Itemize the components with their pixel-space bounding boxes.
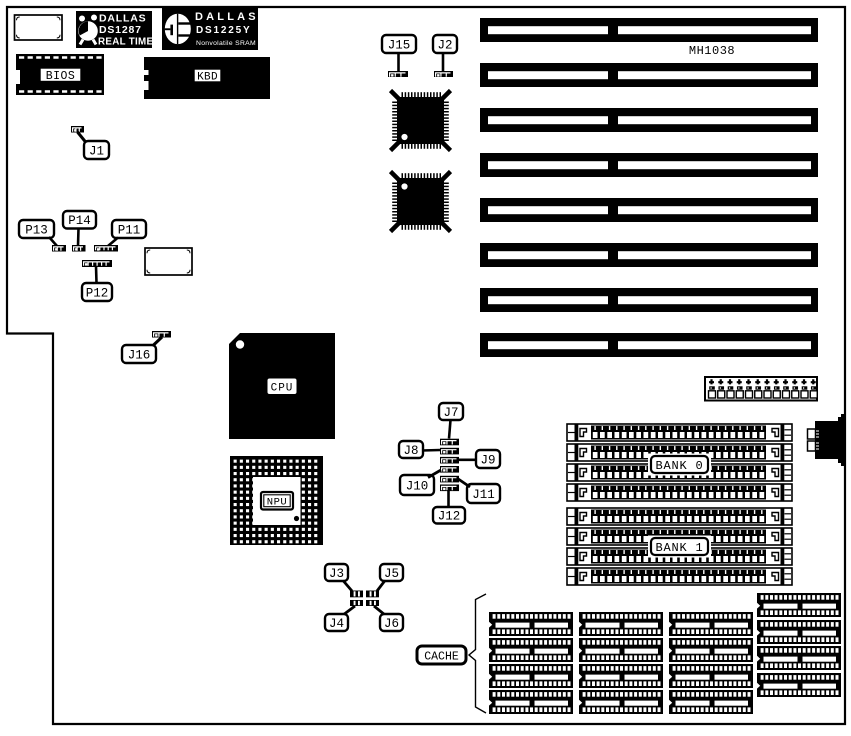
svg-text:J8: J8	[403, 444, 418, 458]
svg-text:J9: J9	[480, 453, 495, 467]
svg-text:DS1225Y: DS1225Y	[196, 25, 251, 36]
svg-text:BANK 1: BANK 1	[655, 541, 703, 555]
svg-text:J3: J3	[329, 567, 344, 581]
svg-text:J1: J1	[89, 144, 104, 158]
svg-text:J12: J12	[438, 510, 461, 524]
svg-text:KBD: KBD	[197, 71, 218, 83]
svg-text:MH1038: MH1038	[689, 44, 735, 58]
svg-text:J16: J16	[128, 348, 151, 362]
svg-text:P12: P12	[86, 286, 109, 300]
svg-text:J11: J11	[472, 488, 495, 502]
svg-text:BANK 0: BANK 0	[655, 459, 703, 473]
svg-text:P11: P11	[118, 223, 141, 237]
svg-text:BIOS: BIOS	[46, 70, 76, 83]
svg-text:J6: J6	[384, 617, 399, 631]
svg-text:J15: J15	[388, 38, 411, 52]
svg-text:DALLAS: DALLAS	[99, 13, 146, 25]
svg-text:CPU: CPU	[271, 383, 294, 395]
svg-text:NPU: NPU	[267, 497, 287, 509]
svg-text:CACHE: CACHE	[424, 650, 459, 663]
svg-text:J2: J2	[437, 38, 452, 52]
svg-text:J4: J4	[329, 617, 344, 631]
svg-text:J10: J10	[406, 479, 429, 493]
svg-text:REAL TIME: REAL TIME	[98, 37, 153, 48]
svg-text:DALLAS: DALLAS	[195, 11, 259, 23]
svg-text:P14: P14	[68, 214, 91, 228]
svg-text:P13: P13	[25, 223, 48, 237]
svg-text:J5: J5	[384, 567, 399, 581]
svg-text:Nonvolatile SRAM: Nonvolatile SRAM	[196, 40, 256, 47]
svg-text:DS1287: DS1287	[99, 24, 142, 36]
svg-text:J7: J7	[443, 406, 458, 420]
